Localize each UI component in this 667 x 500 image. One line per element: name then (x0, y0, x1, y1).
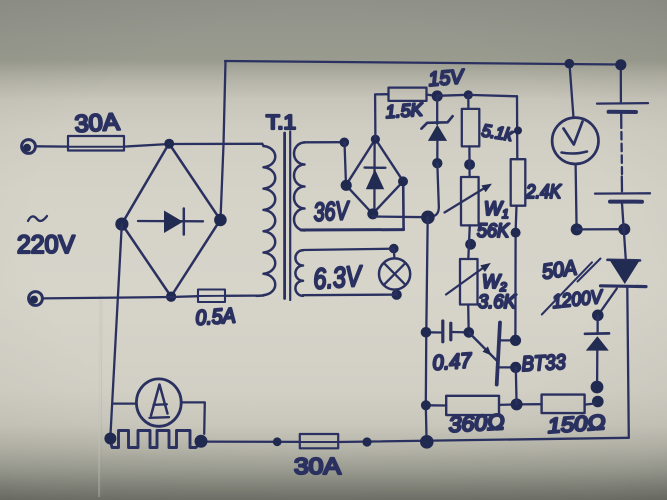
svg-text:15V: 15V (428, 66, 466, 91)
svg-text:1.5K: 1.5K (385, 99, 424, 122)
svg-text:0.5A: 0.5A (195, 304, 237, 330)
svg-text:360Ω: 360Ω (448, 409, 505, 437)
svg-text:150Ω: 150Ω (547, 411, 606, 438)
svg-text:36V: 36V (313, 195, 352, 227)
svg-text:6.3V: 6.3V (312, 261, 364, 296)
svg-text:2.4K: 2.4K (525, 182, 562, 203)
svg-text:T.1: T.1 (266, 112, 296, 134)
svg-text:3.6K: 3.6K (478, 292, 517, 313)
svg-text:220V: 220V (17, 231, 75, 259)
svg-text:BT33: BT33 (521, 351, 566, 376)
svg-text:30A: 30A (294, 453, 342, 479)
svg-text:30A: 30A (74, 109, 120, 138)
svg-text:0.47: 0.47 (432, 349, 474, 375)
svg-text:50A: 50A (540, 256, 578, 284)
svg-text:56K: 56K (477, 221, 510, 242)
